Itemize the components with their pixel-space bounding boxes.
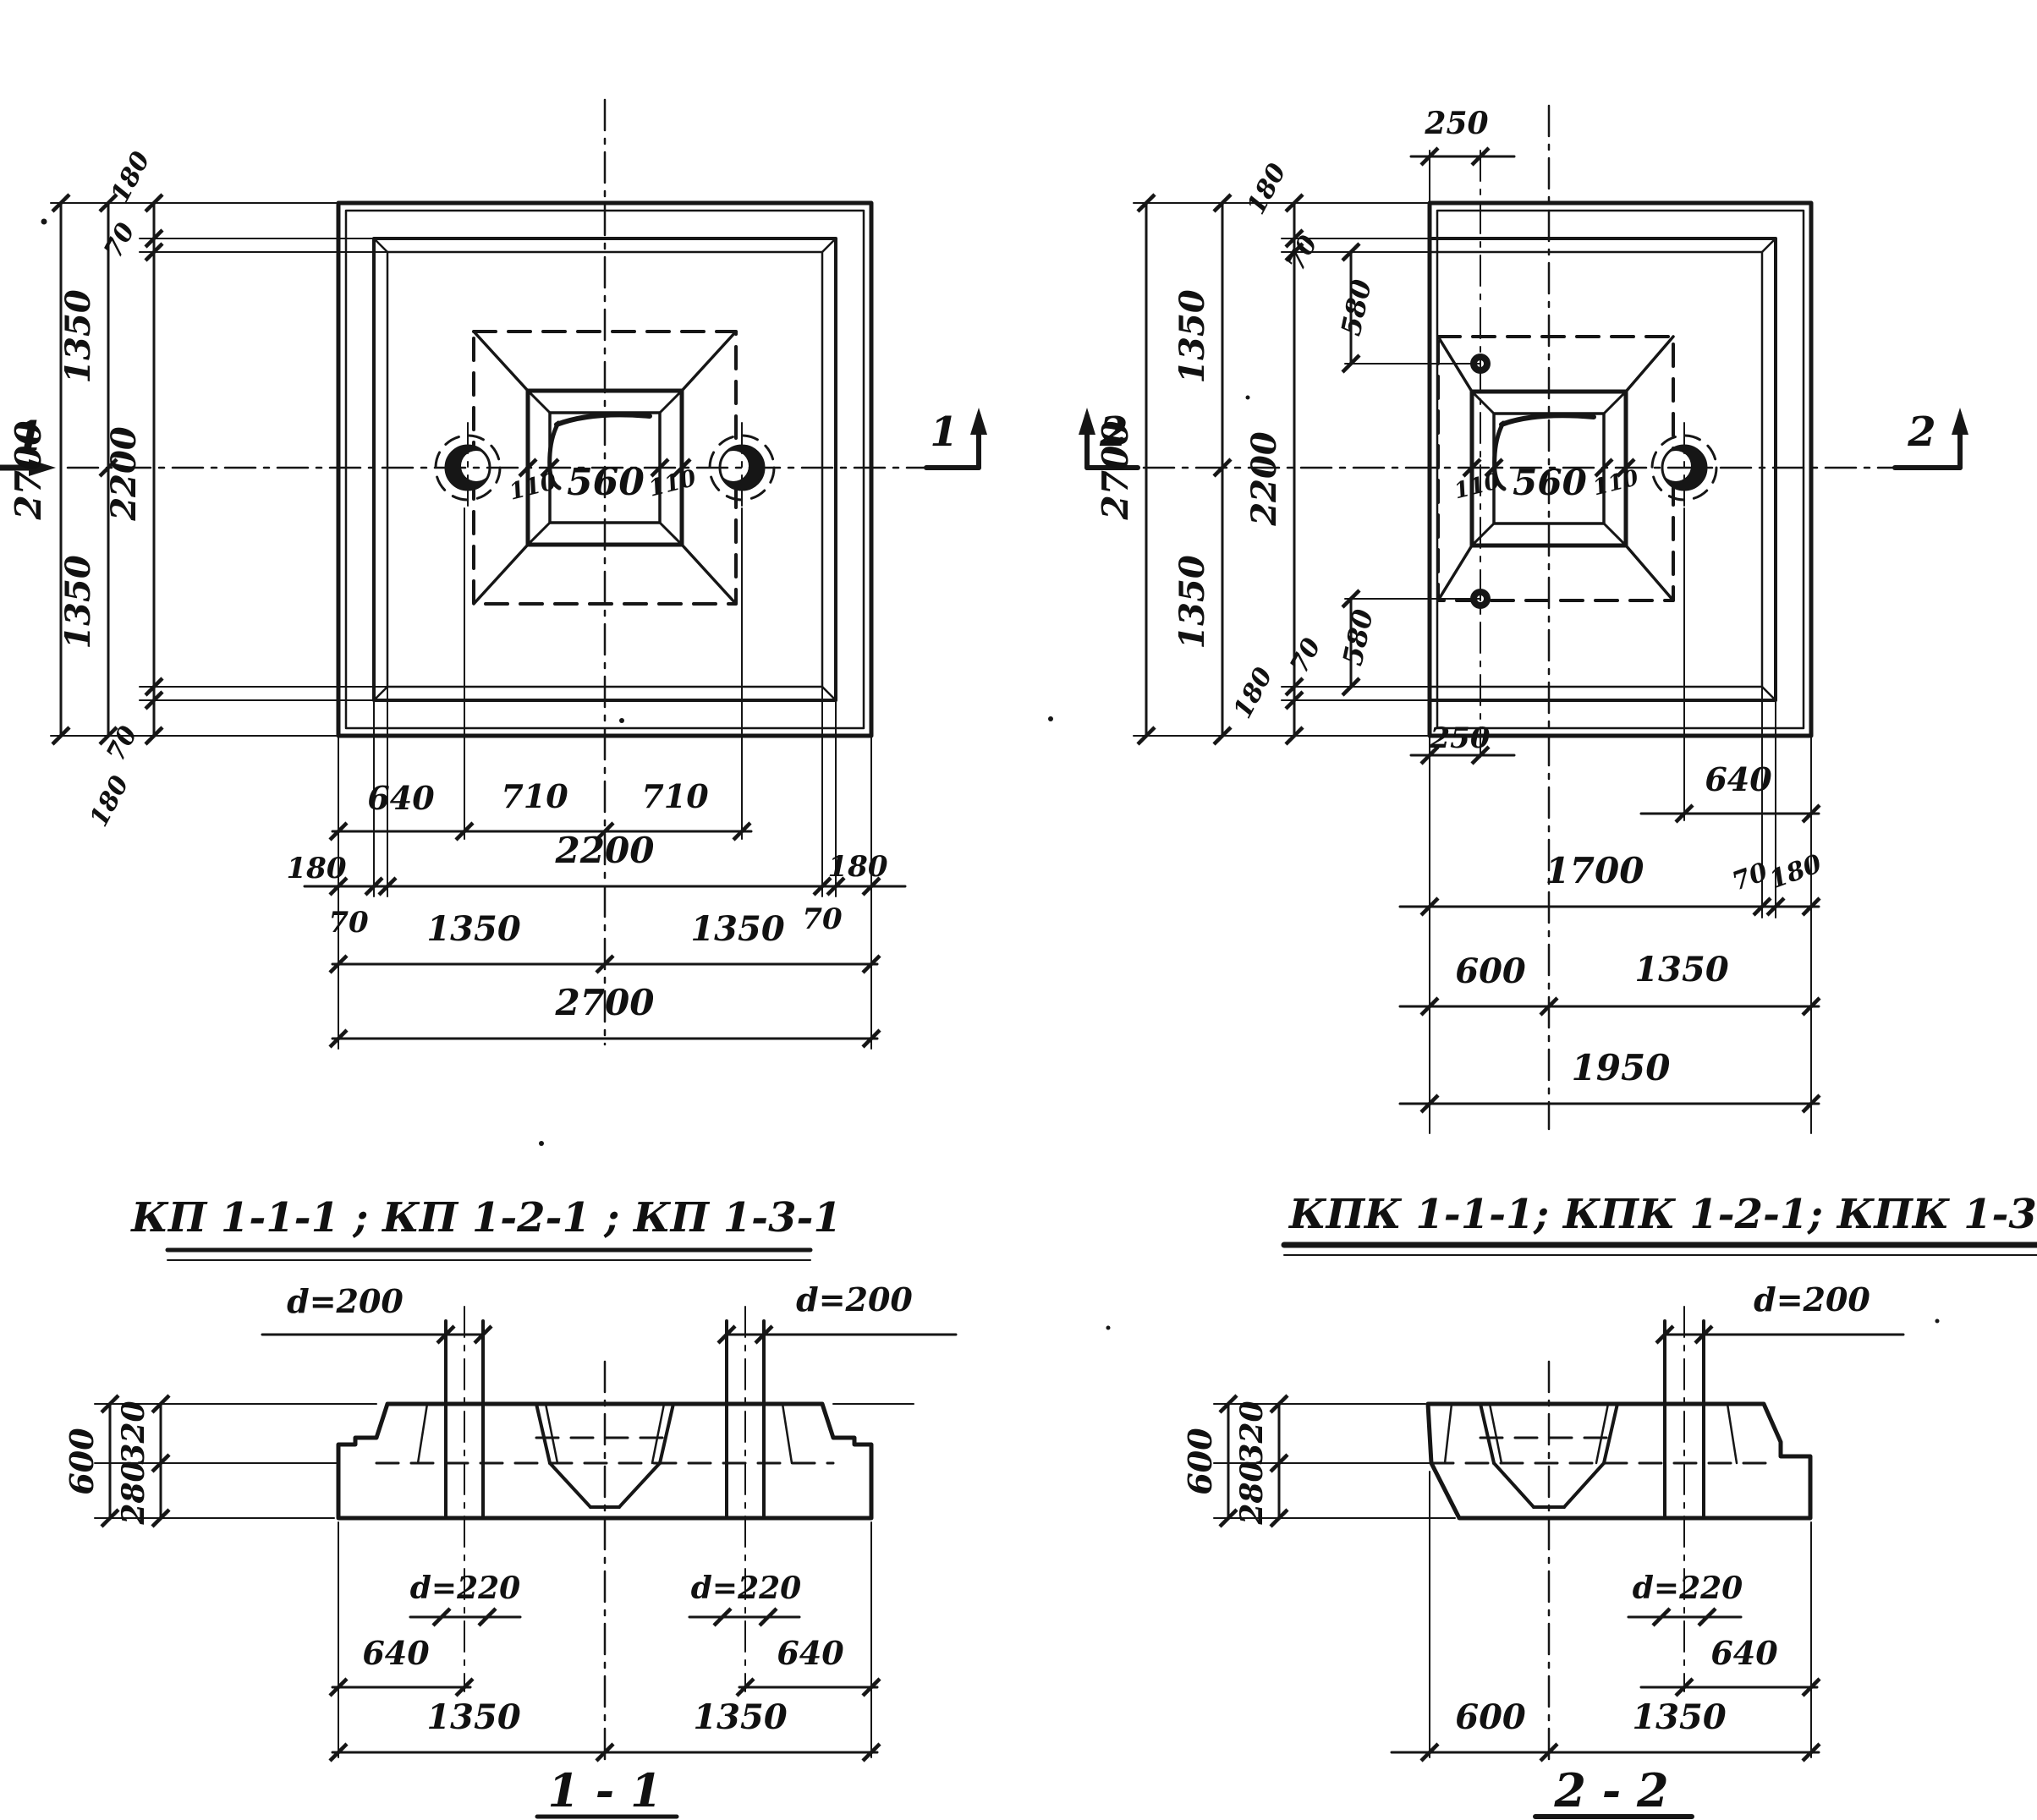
dim-640: 640 (1710, 1634, 1778, 1672)
dim-2200: 2200 (104, 426, 144, 521)
dim-640: 640 (362, 1634, 430, 1672)
dim-1700: 1700 (1546, 850, 1644, 891)
dim-280: 280 (1234, 1461, 1270, 1525)
dim-180: 180 (84, 771, 135, 832)
dim-1350: 1350 (426, 1697, 520, 1737)
dim-70: 70 (1728, 857, 1771, 896)
dim-580: 580 (1335, 277, 1378, 338)
dim-320: 320 (1234, 1401, 1270, 1464)
dim-180: 180 (828, 850, 888, 884)
dim-640: 640 (1705, 760, 1772, 798)
foundation-drawing-canvas: 1 1 2700 1350 1350 2200 180 70 70 180 11… (0, 0, 2037, 1820)
dim-d200: d=200 (1754, 1280, 1870, 1318)
dim-d220: d=220 (691, 1571, 801, 1606)
dim-110: 110 (1590, 465, 1641, 501)
dim-600: 600 (1455, 951, 1526, 991)
ink-speckles (41, 219, 1940, 1330)
dim-1950: 1950 (1572, 1047, 1671, 1088)
socket-scribble (557, 414, 650, 425)
dim-2700: 2700 (8, 421, 49, 521)
dim-70: 70 (802, 902, 843, 936)
title-kp: КП 1-1-1 ; КП 1-2-1 ; КП 1-3-1 (129, 1194, 842, 1260)
dim-580: 580 (1337, 606, 1380, 668)
title-kpk: КПК 1-1-1; КПК 1-2-1; КПК 1-3-1 (1284, 1191, 2037, 1255)
dim-d220: d=220 (410, 1571, 520, 1606)
dim-640: 640 (367, 779, 435, 817)
dim-1350: 1350 (1172, 289, 1212, 383)
dim-600: 600 (1455, 1697, 1526, 1737)
section-marker-2-right: 2 (1895, 408, 1968, 468)
dim-560: 560 (567, 461, 645, 504)
dim-110: 110 (507, 469, 559, 506)
dim-70: 70 (98, 218, 141, 263)
dim-d200: d=200 (287, 1282, 404, 1320)
section-1-label: 1 (930, 408, 958, 456)
dim-1350: 1350 (1172, 555, 1212, 649)
section-marker-1-right: 1 (926, 408, 987, 468)
dim-1350: 1350 (1634, 950, 1728, 989)
dim-560: 560 (1513, 462, 1587, 503)
title-kp-text: КП 1-1-1 ; КП 1-2-1 ; КП 1-3-1 (129, 1194, 842, 1242)
section-2-title: 2 - 2 (1553, 1763, 1668, 1817)
dim-2200: 2200 (555, 830, 655, 871)
dim-2700: 2700 (555, 982, 655, 1023)
dim-1350: 1350 (1632, 1697, 1726, 1737)
dim-250: 250 (1430, 721, 1491, 755)
dim-600: 600 (63, 1428, 101, 1495)
section-1-1: d=200 d=200 600 320 280 d=220 d=220 (63, 1280, 956, 1817)
plan-right-dim-250-top: 250 (1411, 106, 1514, 203)
dim-180: 180 (1227, 663, 1278, 724)
dim-710: 710 (501, 777, 568, 815)
dim-250: 250 (1424, 106, 1488, 141)
dim-1350: 1350 (690, 909, 784, 949)
plan-left-socket-dims: 110 560 110 (507, 459, 699, 506)
socket-scribble (1502, 415, 1594, 425)
dim-70: 70 (1284, 633, 1327, 678)
section-arrow-icon (970, 408, 987, 435)
dim-1350: 1350 (58, 555, 98, 649)
dim-110: 110 (646, 465, 699, 502)
dim-2200: 2200 (1244, 431, 1284, 526)
dim-70: 70 (1281, 231, 1324, 276)
dim-1350: 1350 (426, 909, 520, 949)
dim-d200: d=200 (796, 1280, 913, 1318)
section-2-label: 2 (1907, 408, 1935, 456)
dim-1350: 1350 (58, 289, 98, 383)
dim-70: 70 (328, 906, 369, 940)
section-arrow-icon (1952, 408, 1968, 435)
dim-180: 180 (105, 147, 156, 208)
title-kpk-text: КПК 1-1-1; КПК 1-2-1; КПК 1-3-1 (1288, 1191, 2037, 1238)
dim-710: 710 (641, 777, 709, 815)
plan-left-chains-left: 2700 1350 1350 2200 180 70 70 180 (8, 147, 387, 832)
dim-640: 640 (777, 1634, 844, 1672)
dim-600: 600 (1181, 1428, 1219, 1495)
dim-2700: 2700 (1095, 421, 1136, 521)
dim-d220: d=220 (1633, 1571, 1743, 1606)
section-arrow-icon (1079, 408, 1095, 435)
section-1-title: 1 - 1 (547, 1763, 662, 1817)
dim-280: 280 (116, 1461, 151, 1525)
dim-180: 180 (287, 852, 347, 885)
plan-right-chains-left: 2700 1350 1350 2200 180 70 580 70 580 18… (1095, 159, 1514, 764)
dim-180: 180 (1765, 849, 1826, 895)
drawing-sheet: 1 1 2700 1350 1350 2200 180 70 70 180 11… (0, 0, 2037, 1820)
section-2-2: d=200 600 320 280 d=220 640 (1181, 1280, 1903, 1817)
dim-320: 320 (116, 1401, 151, 1464)
dim-1350: 1350 (693, 1697, 787, 1737)
plan-left-chains-bottom: 640 710 710 180 2200 180 70 70 1350 1350… (287, 508, 905, 1049)
